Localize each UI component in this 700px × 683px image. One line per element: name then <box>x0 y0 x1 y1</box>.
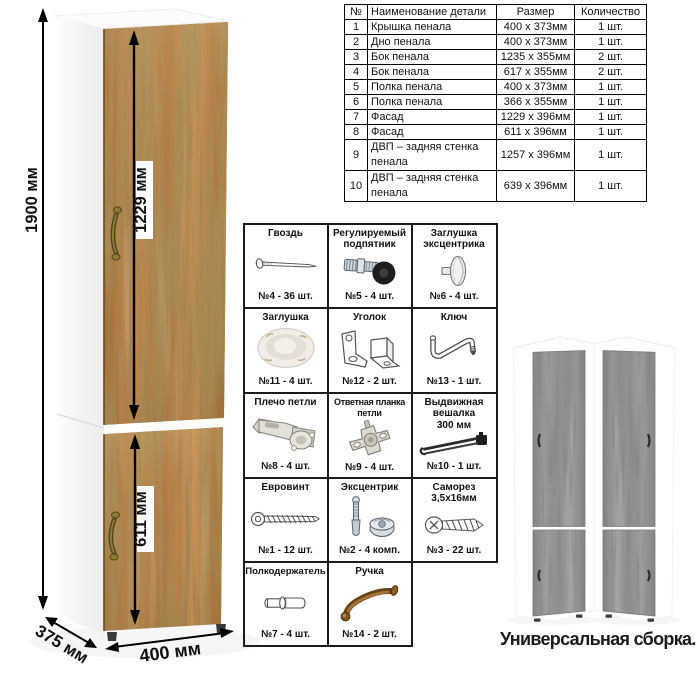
svg-text:611 мм: 611 мм <box>132 491 150 547</box>
svg-text:1229 мм: 1229 мм <box>132 167 150 233</box>
svg-text:1900 мм: 1900 мм <box>23 167 41 233</box>
